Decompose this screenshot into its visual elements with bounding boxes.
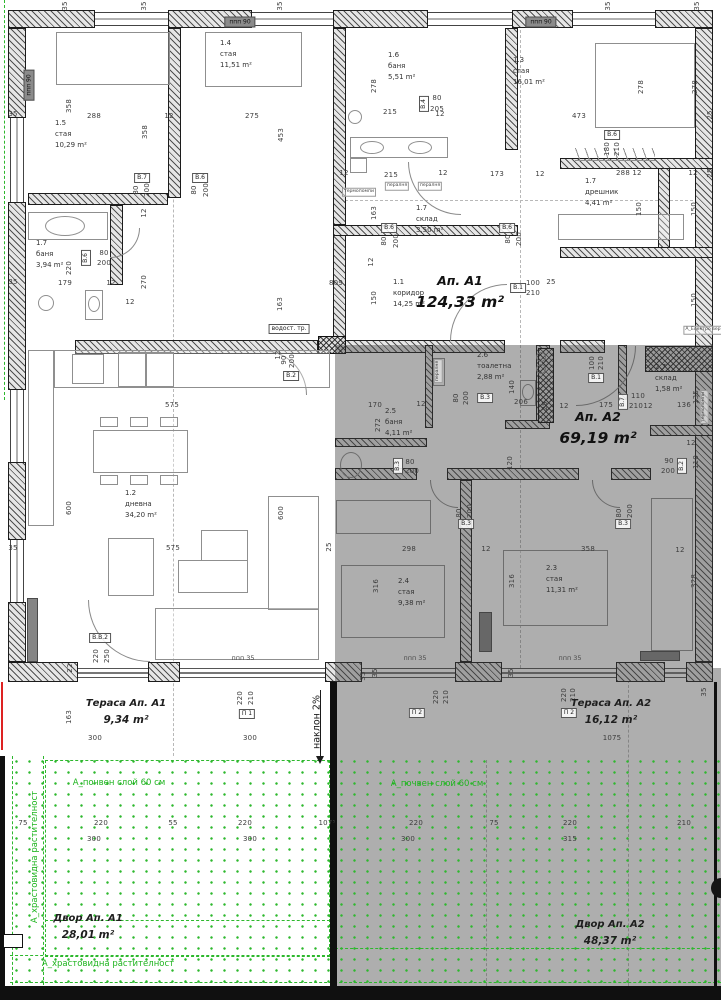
apartment-name: Ап. А1 bbox=[416, 271, 504, 290]
wall-segment bbox=[560, 247, 713, 258]
door-swing bbox=[450, 284, 507, 341]
dimension-label: 35 bbox=[140, 1, 148, 10]
note-label: ппп 35 bbox=[558, 654, 581, 662]
room-number: 1.7 bbox=[416, 203, 443, 214]
dimension-label: 12 bbox=[274, 350, 282, 359]
zone-label: Тераса Ап. А2 16,12 m² bbox=[571, 696, 651, 728]
dimension-label: 12 bbox=[675, 546, 684, 554]
dimension-label: 12 bbox=[125, 298, 134, 306]
chair bbox=[130, 475, 148, 485]
dimension-label: 300 bbox=[87, 835, 101, 843]
vegetation-line bbox=[12, 756, 13, 985]
room-name: стая bbox=[220, 49, 252, 60]
wall-pillar bbox=[538, 348, 554, 423]
wall-segment bbox=[505, 28, 518, 150]
room-label: 1.7 баня 3,94 m² bbox=[36, 238, 63, 271]
room-name: стая bbox=[513, 66, 545, 77]
boundary-bar bbox=[0, 756, 5, 986]
vegetation-area bbox=[335, 756, 721, 986]
door-tag: В.6 bbox=[604, 130, 620, 140]
equipment-block bbox=[27, 598, 38, 662]
fixture bbox=[340, 452, 362, 478]
vegetation-label: А_почвен слой 60 см bbox=[391, 779, 483, 789]
dimension-label: 809 bbox=[329, 279, 343, 287]
wall-segment bbox=[425, 345, 433, 428]
dimension-label: 150 bbox=[370, 291, 378, 305]
lintel-label: ппп 90 bbox=[224, 17, 255, 28]
equipment-block bbox=[479, 612, 492, 652]
dimension-label: 206 bbox=[514, 398, 528, 406]
dimension-label: 210 bbox=[597, 356, 605, 370]
dimension-label: 220 bbox=[432, 690, 440, 704]
room-area: 11,31 m² bbox=[546, 585, 578, 596]
dimension-label: 25 bbox=[546, 278, 555, 286]
glass-door bbox=[78, 668, 148, 678]
room-label: 1.4 стая 11,51 m² bbox=[220, 38, 252, 71]
dimension-label: 12 bbox=[686, 439, 695, 447]
zone-area: 9,34 m² bbox=[86, 712, 166, 728]
wall-segment bbox=[168, 28, 181, 198]
wall-segment bbox=[618, 345, 627, 400]
dimension-label: 300 bbox=[88, 734, 102, 742]
dimension-label: 270 bbox=[140, 275, 148, 289]
dimension-label: 179 bbox=[58, 279, 72, 287]
room-area: 9,38 m² bbox=[398, 598, 425, 609]
dimension-label: 80 bbox=[504, 234, 512, 243]
boundary-bar bbox=[330, 682, 337, 986]
dimension-label: 200 bbox=[462, 391, 470, 405]
dimension-label: 35 bbox=[604, 1, 612, 10]
dimension-label: 80 bbox=[455, 508, 463, 517]
zone-label: Двор Ап. А1 28,01 m² bbox=[53, 911, 122, 943]
dimension-label: 80 bbox=[405, 458, 414, 466]
room-area: 16,01 m² bbox=[513, 77, 545, 88]
door-tag: В.3 bbox=[458, 519, 474, 529]
dimension-label: 25 bbox=[706, 168, 714, 177]
furniture bbox=[56, 32, 170, 85]
vegetation-label: А_храстовидна растителност bbox=[42, 959, 174, 969]
dimension-label: 200 bbox=[288, 354, 296, 368]
room-label: 2.6 тоалетна 2,88 m² bbox=[477, 350, 511, 383]
wall-segment bbox=[8, 462, 26, 540]
dimension-label: 25 bbox=[541, 401, 549, 410]
boundary-bar bbox=[714, 682, 717, 986]
room-area: 3,50 m² bbox=[416, 225, 443, 236]
dimension-label: 473 bbox=[572, 112, 586, 120]
level-marker bbox=[711, 878, 721, 898]
boundary-bar bbox=[0, 986, 721, 1000]
dimension-label: 358 bbox=[65, 99, 73, 113]
door-tag: В.2 bbox=[283, 371, 299, 381]
zone-label: Тераса Ап. А1 9,34 m² bbox=[86, 696, 166, 728]
zone-name: Двор Ап. А1 bbox=[53, 911, 122, 927]
zone-area: 28,01 m² bbox=[53, 927, 122, 943]
wall-segment bbox=[333, 225, 518, 236]
room-area: 1,58 m² bbox=[655, 384, 682, 395]
room-label: 2.4 стая 9,38 m² bbox=[398, 576, 425, 609]
furniture bbox=[108, 538, 154, 596]
dimension-label: 80 bbox=[432, 94, 441, 102]
dimension-label: 200 bbox=[626, 504, 634, 518]
room-name: стая bbox=[546, 574, 578, 585]
wall-segment bbox=[8, 602, 26, 662]
dimension-label: 12 bbox=[688, 169, 697, 177]
room-area: 34,20 m² bbox=[125, 510, 157, 521]
room-area: 4,11 m² bbox=[385, 428, 412, 439]
furniture bbox=[205, 32, 302, 87]
dimension-label: 220 bbox=[92, 649, 100, 663]
dimension-label: 163 bbox=[370, 206, 378, 220]
dimension-label: 220 bbox=[560, 688, 568, 702]
furniture bbox=[336, 500, 431, 534]
vegetation-line bbox=[335, 948, 715, 949]
door-tag: В.2 bbox=[677, 458, 687, 474]
dimension-label: 12 bbox=[164, 112, 173, 120]
dimension-label: 358 bbox=[581, 545, 595, 553]
dimension-label: 278 bbox=[370, 79, 378, 93]
dimension-label: 220 bbox=[94, 819, 108, 827]
dimension-label: 358 bbox=[141, 125, 149, 139]
note-label: ппп 35 bbox=[231, 654, 254, 662]
dimension-label: 35 bbox=[61, 1, 69, 10]
room-number: 2.7 bbox=[655, 362, 682, 373]
room-area: 3,94 m² bbox=[36, 260, 63, 271]
fixture bbox=[408, 141, 432, 154]
fixture bbox=[348, 110, 362, 124]
wall-pillar bbox=[318, 336, 346, 354]
wall-segment bbox=[148, 662, 180, 682]
apartment-area: 124,33 m² bbox=[416, 290, 504, 314]
dimension-label: 200 bbox=[97, 259, 111, 267]
dimension-label: 35 bbox=[507, 668, 515, 677]
furniture bbox=[85, 290, 103, 320]
furniture bbox=[433, 358, 445, 386]
window bbox=[10, 540, 24, 602]
dimension-label: 35 bbox=[8, 110, 17, 118]
vegetation-line bbox=[10, 955, 330, 956]
window bbox=[428, 12, 512, 26]
dimension-label: 110 bbox=[692, 455, 700, 469]
door-tag: В.6 bbox=[81, 250, 91, 266]
dimension-label: 300 bbox=[401, 835, 415, 843]
note-label: термопомпи bbox=[700, 390, 709, 424]
room-name: баня bbox=[36, 249, 63, 260]
room-area: 4,41 m² bbox=[585, 198, 618, 209]
dimension-label: 453 bbox=[277, 128, 285, 142]
note-label: пералня bbox=[418, 182, 442, 191]
dimension-label: 200 bbox=[143, 183, 151, 197]
door-tag: В.6 bbox=[499, 223, 515, 233]
dimension-label: 278 bbox=[637, 80, 645, 94]
wall-segment bbox=[447, 468, 579, 480]
dimension-label: 600 bbox=[277, 506, 285, 520]
wall-segment bbox=[560, 340, 605, 353]
zone-name: Тераса Ап. А2 bbox=[571, 696, 651, 712]
glass-door bbox=[502, 668, 616, 678]
dimension-label: 135 bbox=[692, 390, 700, 404]
furniture bbox=[350, 158, 367, 173]
note-label: пералня bbox=[434, 359, 443, 383]
room-name: стая bbox=[55, 129, 87, 140]
wall-segment bbox=[333, 225, 346, 340]
vegetation-border bbox=[45, 760, 330, 957]
room-label: 1.5 стая 10,29 m² bbox=[55, 118, 87, 151]
dimension-label: 220 bbox=[409, 819, 423, 827]
furniture bbox=[93, 430, 188, 473]
dimension-label: 25 bbox=[706, 110, 714, 119]
vegetation-line bbox=[10, 982, 721, 983]
dimension-label: 12 bbox=[559, 402, 568, 410]
room-label: 1.1 коридор 14,25 m² bbox=[393, 277, 425, 310]
room-name: тоалетна bbox=[477, 361, 511, 372]
room-area: 5,51 m² bbox=[388, 72, 415, 83]
vegetation-label: А_почвен слой 60 см bbox=[73, 778, 165, 788]
fixture bbox=[360, 141, 384, 154]
dimension-label: 220 bbox=[65, 261, 73, 275]
door-swing bbox=[576, 346, 636, 406]
dimension-label: 180 bbox=[603, 142, 611, 156]
vegetation-line bbox=[43, 756, 44, 985]
door-swing bbox=[408, 162, 461, 215]
dimension-label: 12 bbox=[535, 170, 544, 178]
wall-segment bbox=[650, 425, 713, 436]
chair bbox=[100, 475, 118, 485]
furniture bbox=[268, 496, 319, 610]
glass-door bbox=[665, 668, 686, 678]
wall-segment bbox=[335, 468, 417, 480]
dimension-label: 12 bbox=[106, 279, 115, 287]
door-tag: П 2 bbox=[409, 708, 425, 718]
furniture bbox=[155, 608, 319, 660]
furniture bbox=[178, 560, 248, 593]
room-label: 1.7 склад 3,50 m² bbox=[416, 203, 443, 236]
dimension-label: 316 bbox=[508, 574, 516, 588]
corner-box bbox=[3, 934, 23, 948]
door-swing bbox=[592, 480, 620, 508]
room-area: 14,25 m² bbox=[393, 299, 425, 310]
door-tag: В.3 bbox=[477, 393, 493, 403]
furniture bbox=[146, 352, 174, 387]
dimension-label: 35 bbox=[8, 278, 17, 286]
vegetation-line bbox=[4, 0, 5, 400]
door-tag: В.3 bbox=[393, 458, 403, 474]
dimension-label: 1075 bbox=[603, 734, 622, 742]
apartment-a2-tint bbox=[335, 668, 721, 986]
furniture bbox=[28, 212, 108, 240]
fixture bbox=[522, 384, 534, 400]
chair bbox=[160, 417, 178, 427]
slope-arrow-head bbox=[316, 756, 324, 764]
door-tag: П 1 bbox=[239, 709, 255, 719]
dimension-label: 136 bbox=[677, 401, 691, 409]
fixture bbox=[88, 296, 100, 312]
door-tag: П 2 bbox=[561, 708, 577, 718]
dimension-label: 35 bbox=[276, 1, 284, 10]
furniture bbox=[72, 354, 104, 384]
slope-label: наклон 2% bbox=[312, 695, 323, 749]
note-label: водост. тр. bbox=[269, 324, 310, 334]
zone-name: Тераса Ап. А1 bbox=[86, 696, 166, 712]
room-area: 11,51 m² bbox=[220, 60, 252, 71]
dimension-label: 575 bbox=[165, 401, 179, 409]
dimension-label: 140 bbox=[508, 380, 516, 394]
zone-area: 48,37 m² bbox=[575, 933, 644, 949]
dimension-label: 12 bbox=[140, 208, 148, 217]
furniture bbox=[520, 380, 536, 406]
dimension-label: 12 bbox=[435, 110, 444, 118]
room-number: 2.5 bbox=[385, 406, 412, 417]
apartment-a2-tint bbox=[335, 345, 713, 668]
room-label: 2.3 стая 11,31 m² bbox=[546, 563, 578, 596]
dimension-label: 300 bbox=[243, 734, 257, 742]
dimension-label: 250 bbox=[103, 649, 111, 663]
axis-line bbox=[520, 30, 521, 668]
dimension-label: 170 bbox=[368, 401, 382, 409]
door-tag: В.4 bbox=[419, 96, 429, 112]
dimension-label: 210 bbox=[629, 402, 643, 410]
dimension-label: 220 bbox=[238, 819, 252, 827]
dimension-label: 80 bbox=[380, 236, 388, 245]
door-swing bbox=[110, 228, 140, 258]
door-swing bbox=[262, 350, 307, 395]
room-name: дрешник bbox=[585, 187, 618, 198]
dimension-label: 220 bbox=[563, 819, 577, 827]
dimension-label: 12 bbox=[438, 169, 447, 177]
furniture bbox=[118, 352, 146, 387]
note-label: А_Електро вер bbox=[683, 326, 721, 335]
slope-arrow-line bbox=[320, 690, 321, 756]
dimension-label: 100 bbox=[526, 279, 540, 287]
furniture bbox=[350, 137, 448, 158]
dimension-label: 107⁵ bbox=[319, 819, 336, 827]
wall-segment bbox=[505, 420, 550, 429]
dimension-label: 55 bbox=[168, 819, 177, 827]
dimension-label: 75 bbox=[18, 819, 27, 827]
room-number: 2.4 bbox=[398, 576, 425, 587]
dimension-label: 12 bbox=[339, 169, 348, 177]
room-label: 1.2 дневна 34,20 m² bbox=[125, 488, 157, 521]
dimension-label: 575 bbox=[166, 544, 180, 552]
dimension-label: 25 bbox=[325, 542, 333, 551]
room-label: 1.3 стая 16,01 m² bbox=[513, 55, 545, 88]
window bbox=[95, 12, 168, 26]
axis-line bbox=[486, 760, 487, 986]
vegetation-label: А_храстовидна растителност bbox=[30, 791, 40, 923]
dimension-label: 200 bbox=[405, 467, 419, 475]
wall-segment bbox=[611, 468, 651, 480]
wall-segment bbox=[8, 662, 78, 682]
dimension-label: 200 bbox=[466, 504, 474, 518]
dimension-label: 288 bbox=[87, 112, 101, 120]
room-number: 1.2 bbox=[125, 488, 157, 499]
room-name: дневна bbox=[125, 499, 157, 510]
apartment-area: 69,19 m² bbox=[559, 426, 636, 450]
room-number: 1.3 bbox=[513, 55, 545, 66]
furniture bbox=[201, 530, 248, 561]
door-swing bbox=[430, 480, 458, 508]
dimension-label: 80 bbox=[99, 249, 108, 257]
room-name: коридор bbox=[393, 288, 425, 299]
dimension-label: 288 bbox=[616, 169, 630, 177]
axis-line bbox=[173, 30, 174, 756]
apartment-label: Ап. А1 124,33 m² bbox=[416, 271, 504, 314]
dimension-label: 163 bbox=[65, 710, 73, 724]
glass-door bbox=[362, 668, 455, 678]
door-tag: В.7 bbox=[618, 394, 628, 410]
door-tag: В.6 bbox=[381, 223, 397, 233]
room-label: 2.7 склад 1,58 m² bbox=[655, 362, 682, 395]
wall-segment bbox=[168, 10, 252, 28]
dimension-label: 215 bbox=[384, 171, 398, 179]
chair bbox=[100, 417, 118, 427]
room-name: склад bbox=[416, 214, 443, 225]
dimension-label: 600 bbox=[65, 501, 73, 515]
furniture bbox=[558, 214, 684, 240]
furniture bbox=[651, 498, 693, 651]
window bbox=[573, 12, 655, 26]
wardrobe-rail bbox=[575, 148, 655, 161]
wall-segment bbox=[335, 438, 427, 447]
dimension-label: 316 bbox=[372, 579, 380, 593]
fixture bbox=[45, 216, 85, 236]
door-tag: В.В.2 bbox=[89, 633, 111, 643]
dimension-label: 220 bbox=[236, 691, 244, 705]
room-number: 1.5 bbox=[55, 118, 87, 129]
dimension-label: 175 bbox=[599, 401, 613, 409]
room-area: 2,88 m² bbox=[477, 372, 511, 383]
room-number: 2.3 bbox=[546, 563, 578, 574]
dimension-label: 163 bbox=[276, 297, 284, 311]
wall-segment bbox=[560, 158, 713, 169]
door-tag: В.7 bbox=[134, 173, 150, 183]
wall-segment bbox=[8, 202, 26, 390]
apartment-label: Ап. А2 69,19 m² bbox=[559, 407, 636, 450]
fixture bbox=[536, 364, 546, 374]
dimension-label: 210 bbox=[613, 142, 621, 156]
dimension-label: 80 bbox=[452, 393, 460, 402]
room-number: 1.1 bbox=[393, 277, 425, 288]
axis-line bbox=[340, 200, 713, 201]
dimension-label: 35 bbox=[359, 671, 367, 680]
dimension-label: 150 bbox=[690, 293, 698, 307]
chair bbox=[160, 475, 178, 485]
furniture bbox=[341, 565, 445, 638]
dimension-label: 12 bbox=[632, 169, 641, 177]
furniture bbox=[503, 550, 608, 626]
wall-segment bbox=[8, 28, 26, 118]
note-label: ппп 35 bbox=[403, 654, 426, 662]
note-label: пералня bbox=[385, 182, 409, 191]
vegetation-line bbox=[45, 920, 330, 921]
dimension-label: 200 bbox=[392, 234, 400, 248]
dimension-label: 278 bbox=[691, 80, 699, 94]
room-number: 1.7 bbox=[36, 238, 63, 249]
door-tag: В.3 bbox=[615, 519, 631, 529]
dimension-label: 205 bbox=[430, 105, 444, 113]
window bbox=[252, 12, 333, 26]
dimension-label: 75 bbox=[489, 819, 498, 827]
apartment-name: Ап. А2 bbox=[559, 407, 636, 426]
dimension-label: 300 bbox=[243, 835, 257, 843]
dimension-label: 35 bbox=[700, 687, 708, 696]
room-number: 2.6 bbox=[477, 350, 511, 361]
wall-pillar bbox=[645, 346, 713, 372]
dimension-label: 210 bbox=[442, 690, 450, 704]
dimension-label: 150 bbox=[690, 202, 698, 216]
window bbox=[10, 118, 24, 202]
dimension-label: 12 bbox=[416, 400, 425, 408]
room-name: стая bbox=[398, 587, 425, 598]
